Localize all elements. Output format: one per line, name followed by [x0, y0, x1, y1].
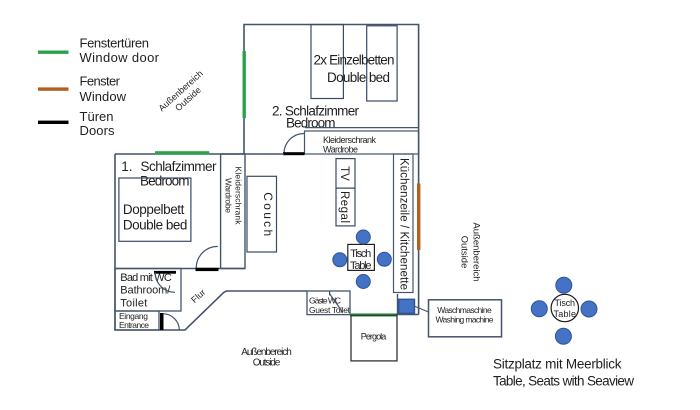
svg-text:Wardrobe: Wardrobe — [224, 178, 234, 213]
svg-text:TV: TV — [338, 166, 350, 181]
svg-text:Bedroom: Bedroom — [286, 116, 336, 131]
svg-text:Wardrobe: Wardrobe — [323, 145, 358, 155]
svg-text:Fenstertüren: Fenstertüren — [80, 36, 150, 51]
svg-text:Double bed: Double bed — [327, 70, 390, 85]
svg-text:Table: Table — [554, 309, 577, 319]
svg-text:Doors: Doors — [80, 123, 116, 138]
svg-text:Double bed: Double bed — [123, 218, 187, 233]
svg-text:Türen: Türen — [80, 109, 114, 124]
svg-text:Fenster: Fenster — [80, 74, 121, 89]
svg-text:Couch: Couch — [261, 192, 275, 236]
svg-text:Waschmaschine: Waschmaschine — [437, 305, 492, 315]
svg-text:Window: Window — [80, 89, 127, 104]
svg-text:Toilet: Toilet — [120, 297, 147, 309]
svg-text:Pergola: Pergola — [361, 332, 387, 342]
svg-text:Bedroom: Bedroom — [140, 174, 190, 189]
svg-text:Bad mit WC: Bad mit WC — [120, 272, 172, 284]
svg-text:Küchenzeile / Kitchenette: Küchenzeile / Kitchenette — [398, 158, 410, 290]
svg-text:Sitzplatz mit Meerblick: Sitzplatz mit Meerblick — [493, 357, 622, 372]
svg-text:Kleiderschrank: Kleiderschrank — [234, 167, 244, 226]
svg-text:Außenbereich: Außenbereich — [241, 347, 292, 358]
svg-text:Outside: Outside — [459, 236, 470, 269]
svg-text:Bathroom/: Bathroom/ — [120, 284, 171, 296]
svg-text:Washing machine: Washing machine — [436, 314, 494, 324]
svg-text:Schlafzimmer: Schlafzimmer — [141, 159, 218, 174]
svg-text:Kleiderschrank: Kleiderschrank — [323, 135, 377, 145]
svg-text:Outside: Outside — [253, 357, 281, 368]
svg-text:Tisch: Tisch — [555, 298, 576, 308]
svg-text:2x Einzelbetten: 2x Einzelbetten — [314, 53, 395, 68]
svg-text:Tisch: Tisch — [350, 248, 371, 260]
svg-text:Table, Seats with Seaview: Table, Seats with Seaview — [493, 373, 634, 388]
svg-text:Guest Toilet: Guest Toilet — [309, 305, 351, 315]
svg-text:Window door: Window door — [80, 50, 160, 65]
svg-text:Entrance: Entrance — [119, 320, 149, 330]
svg-text:Regal: Regal — [338, 191, 350, 223]
svg-text:Table: Table — [350, 260, 372, 272]
svg-text:Außenbereich: Außenbereich — [471, 222, 482, 281]
svg-text:Doppelbett: Doppelbett — [123, 202, 185, 217]
svg-text:1.: 1. — [121, 159, 132, 174]
